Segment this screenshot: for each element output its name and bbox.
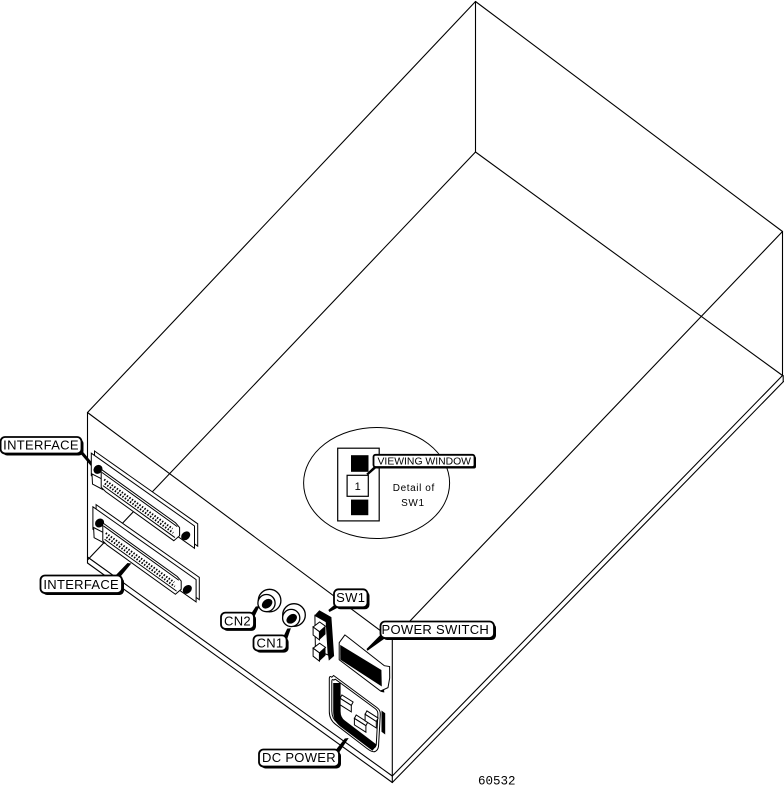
svg-text:CN1: CN1 <box>257 636 284 651</box>
svg-text:VIEWING WINDOW: VIEWING WINDOW <box>378 455 472 467</box>
svg-text:1: 1 <box>355 481 361 493</box>
svg-text:POWER SWITCH: POWER SWITCH <box>382 622 490 637</box>
svg-text:SW1: SW1 <box>401 498 424 509</box>
svg-text:INTERFACE: INTERFACE <box>3 438 79 453</box>
svg-text:SW1: SW1 <box>336 590 365 605</box>
svg-text:DC POWER: DC POWER <box>262 750 336 765</box>
svg-text:60532: 60532 <box>478 775 516 789</box>
svg-text:INTERFACE: INTERFACE <box>43 577 119 592</box>
svg-text:Detail of: Detail of <box>393 483 435 494</box>
svg-text:CN2: CN2 <box>224 613 251 628</box>
